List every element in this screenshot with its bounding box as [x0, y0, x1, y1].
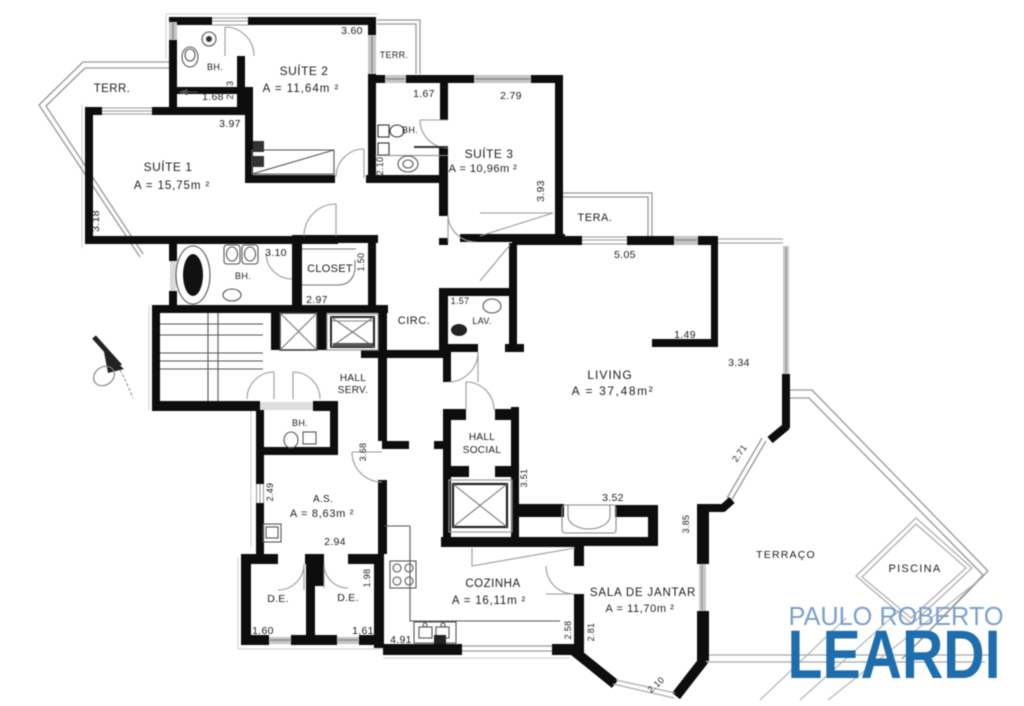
svg-text:1.60: 1.60 [252, 625, 274, 637]
svg-text:3.51: 3.51 [519, 469, 529, 488]
svg-text:SUÍTE 2: SUÍTE 2 [280, 63, 329, 78]
svg-text:1.98: 1.98 [362, 569, 372, 588]
svg-text:3.18: 3.18 [90, 210, 102, 232]
svg-text:1.57: 1.57 [451, 296, 470, 306]
svg-text:3.60: 3.60 [341, 25, 363, 37]
svg-text:BH.: BH. [235, 271, 251, 281]
svg-text:SALA DE JANTAR: SALA DE JANTAR [590, 587, 696, 599]
svg-text:A = 8,63m ²: A = 8,63m ² [290, 508, 354, 520]
svg-text:3.68: 3.68 [358, 443, 368, 462]
svg-text:1.68: 1.68 [202, 91, 224, 103]
svg-text:A = 15,75m ²: A = 15,75m ² [134, 180, 210, 192]
svg-text:2.49: 2.49 [265, 483, 275, 502]
svg-text:COZINHA: COZINHA [465, 578, 520, 590]
svg-text:1.61: 1.61 [352, 625, 374, 637]
svg-text:LAV.: LAV. [472, 316, 491, 326]
svg-text:CIRC.: CIRC. [398, 315, 430, 327]
svg-text:HALL: HALL [469, 432, 495, 443]
svg-text:A = 11,70m ²: A = 11,70m ² [605, 603, 674, 615]
svg-text:SUÍTE 3: SUÍTE 3 [465, 146, 514, 161]
svg-text:SUÍTE 1: SUÍTE 1 [144, 159, 193, 174]
svg-text:3.97: 3.97 [219, 118, 241, 130]
svg-text:TERRAÇO: TERRAÇO [756, 549, 816, 561]
svg-text:1.67: 1.67 [413, 88, 435, 100]
svg-text:BH.: BH. [207, 62, 223, 72]
svg-text:A = 37,48m²: A = 37,48m² [572, 384, 655, 398]
svg-text:3.85: 3.85 [681, 515, 691, 534]
svg-text:2.94: 2.94 [324, 536, 346, 548]
svg-text:3.34: 3.34 [728, 357, 750, 369]
svg-text:TERA.: TERA. [578, 212, 613, 224]
svg-text:D.E.: D.E. [267, 593, 289, 605]
svg-text:2.10: 2.10 [375, 157, 385, 176]
svg-text:PISCINA: PISCINA [888, 563, 941, 575]
svg-text:BH.: BH. [402, 125, 418, 135]
svg-text:LEARDI: LEARDI [788, 616, 1001, 693]
svg-text:4.91: 4.91 [390, 634, 412, 646]
svg-text:A = 11,64m ²: A = 11,64m ² [263, 83, 340, 95]
svg-text:A = 16,11m ²: A = 16,11m ² [452, 595, 526, 607]
svg-text:HALL: HALL [340, 373, 366, 384]
svg-text:3.10: 3.10 [265, 247, 287, 259]
svg-text:LIVING: LIVING [587, 368, 632, 382]
svg-text:A = 10,96m ²: A = 10,96m ² [449, 163, 518, 175]
svg-text:5.05: 5.05 [614, 249, 636, 261]
svg-text:TERR.: TERR. [94, 83, 131, 95]
svg-text:2.58: 2.58 [563, 621, 573, 640]
svg-text:A.S.: A.S. [313, 494, 333, 505]
svg-text:SOCIAL: SOCIAL [463, 445, 502, 456]
svg-text:2.79: 2.79 [500, 90, 522, 102]
svg-text:1.50: 1.50 [356, 253, 366, 272]
svg-text:2.81: 2.81 [586, 623, 596, 642]
svg-text:1.49: 1.49 [674, 329, 696, 341]
svg-text:3.93: 3.93 [535, 180, 547, 202]
svg-text:2.97: 2.97 [306, 294, 328, 306]
svg-text:TERR.: TERR. [380, 50, 409, 60]
svg-text:CLOSET: CLOSET [307, 263, 353, 275]
svg-text:2.13: 2.13 [225, 81, 235, 100]
svg-text:3.52: 3.52 [602, 492, 624, 504]
svg-text:BH.: BH. [292, 418, 308, 428]
svg-text:SERV.: SERV. [338, 385, 368, 396]
svg-text:D.E.: D.E. [337, 592, 359, 604]
